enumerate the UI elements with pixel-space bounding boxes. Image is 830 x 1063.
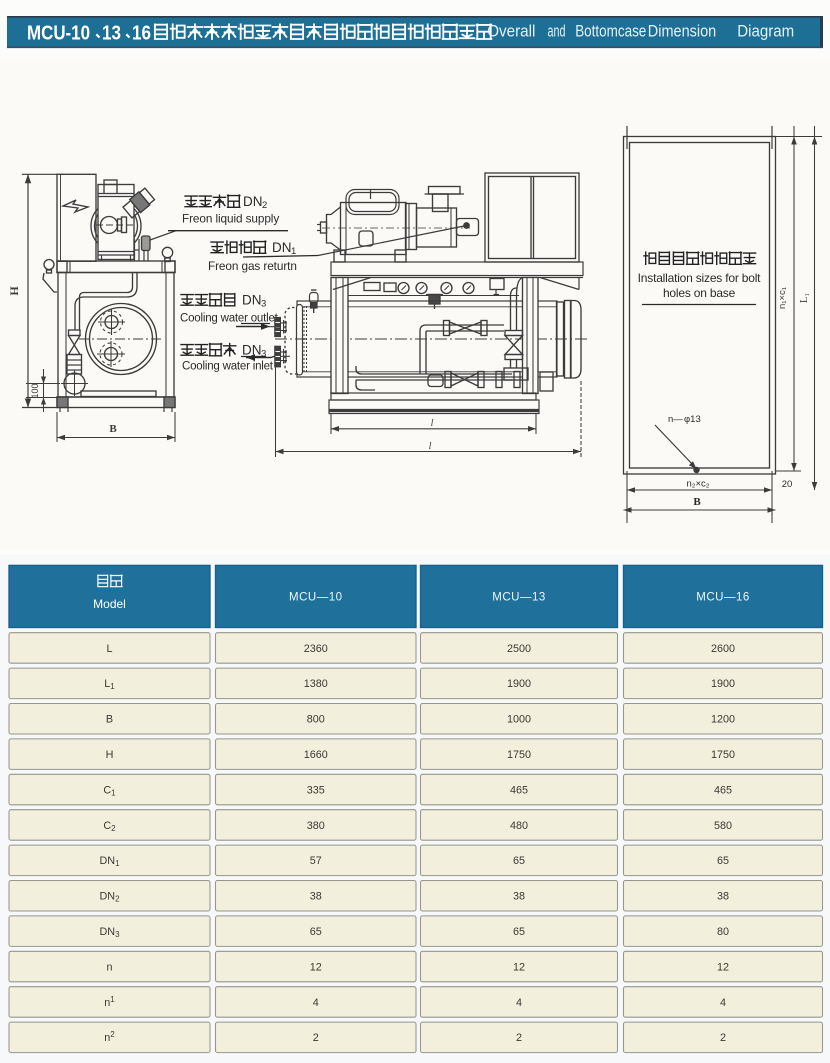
svg-text:2: 2 — [313, 1032, 319, 1044]
svg-text:MCU—10: MCU—10 — [289, 592, 342, 604]
svg-text:4: 4 — [313, 997, 319, 1009]
svg-text:4: 4 — [516, 997, 522, 1009]
svg-text:16: 16 — [132, 23, 151, 45]
svg-text:Freon gas returtn: Freon gas returtn — [208, 259, 297, 273]
svg-text:100: 100 — [30, 383, 40, 398]
svg-text:380: 380 — [307, 820, 325, 832]
svg-text:12: 12 — [717, 961, 729, 973]
svg-text:465: 465 — [714, 784, 732, 796]
svg-text:B: B — [109, 423, 117, 435]
svg-text:465: 465 — [510, 784, 528, 796]
svg-text:80: 80 — [717, 926, 729, 938]
svg-text:B: B — [106, 714, 113, 726]
svg-text:B: B — [693, 496, 701, 508]
svg-text:n₂×c₂: n₂×c₂ — [687, 479, 710, 490]
svg-text:2: 2 — [720, 1032, 726, 1044]
svg-text:580: 580 — [714, 820, 732, 832]
svg-text:Installation sizes for bolt: Installation sizes for bolt — [638, 271, 762, 285]
svg-text:H: H — [7, 286, 21, 296]
svg-text:Bottomcase: Bottomcase — [575, 23, 646, 41]
svg-text:1000: 1000 — [507, 714, 531, 726]
svg-text:1200: 1200 — [711, 714, 735, 726]
svg-text:38: 38 — [513, 891, 525, 903]
svg-text:DN: DN — [242, 293, 262, 308]
svg-text:1750: 1750 — [507, 749, 531, 761]
svg-text:57: 57 — [310, 855, 322, 867]
svg-text:2360: 2360 — [304, 643, 328, 655]
svg-text:1380: 1380 — [304, 678, 328, 690]
svg-text:1900: 1900 — [711, 678, 735, 690]
svg-text:L₁: L₁ — [799, 293, 810, 303]
svg-text:DN: DN — [272, 240, 292, 255]
svg-text:4: 4 — [720, 997, 726, 1009]
svg-text:12: 12 — [513, 961, 525, 973]
svg-text:L: L — [106, 643, 112, 655]
svg-text:and: and — [548, 23, 566, 41]
svg-text:Diagram: Diagram — [737, 23, 794, 41]
svg-text:holes on base: holes on base — [663, 286, 736, 300]
svg-text:1660: 1660 — [304, 749, 328, 761]
svg-text:12: 12 — [310, 961, 322, 973]
svg-text:20: 20 — [782, 479, 793, 490]
svg-text:13: 13 — [102, 23, 121, 45]
svg-text:DN: DN — [242, 343, 262, 358]
svg-text:65: 65 — [513, 926, 525, 938]
svg-text:Cooling water outlet: Cooling water outlet — [180, 313, 279, 325]
svg-text:2: 2 — [262, 200, 267, 211]
svg-text:n₁×c₁: n₁×c₁ — [777, 287, 788, 309]
svg-text:65: 65 — [310, 926, 322, 938]
svg-text:3: 3 — [261, 299, 266, 310]
svg-text:n—: n— — [668, 414, 683, 425]
svg-text:38: 38 — [310, 891, 322, 903]
svg-text:Dimension: Dimension — [648, 23, 716, 41]
svg-text:Overall: Overall — [487, 23, 535, 41]
svg-text:Model: Model — [93, 597, 126, 611]
svg-text:38: 38 — [717, 891, 729, 903]
svg-text:800: 800 — [307, 714, 325, 726]
svg-text:MCU-10: MCU-10 — [27, 23, 90, 45]
svg-text:φ13: φ13 — [684, 414, 701, 425]
svg-text:H: H — [106, 749, 114, 761]
svg-text:DN: DN — [243, 194, 263, 209]
svg-text:1900: 1900 — [507, 678, 531, 690]
svg-text:Freon liquid supply: Freon liquid supply — [182, 212, 279, 226]
svg-text:MCU—13: MCU—13 — [492, 592, 545, 604]
svg-text:335: 335 — [307, 784, 325, 796]
svg-text:1750: 1750 — [711, 749, 735, 761]
svg-text:2500: 2500 — [507, 643, 531, 655]
svg-text:l: l — [429, 441, 432, 452]
svg-text:2: 2 — [516, 1032, 522, 1044]
svg-text:65: 65 — [513, 855, 525, 867]
svg-text:n: n — [106, 961, 112, 973]
svg-text:Cooling water inlet: Cooling water inlet — [182, 361, 274, 373]
svg-text:65: 65 — [717, 855, 729, 867]
svg-text:l: l — [431, 418, 434, 429]
svg-text:MCU—16: MCU—16 — [696, 592, 749, 604]
svg-text:480: 480 — [510, 820, 528, 832]
svg-text:2600: 2600 — [711, 643, 735, 655]
